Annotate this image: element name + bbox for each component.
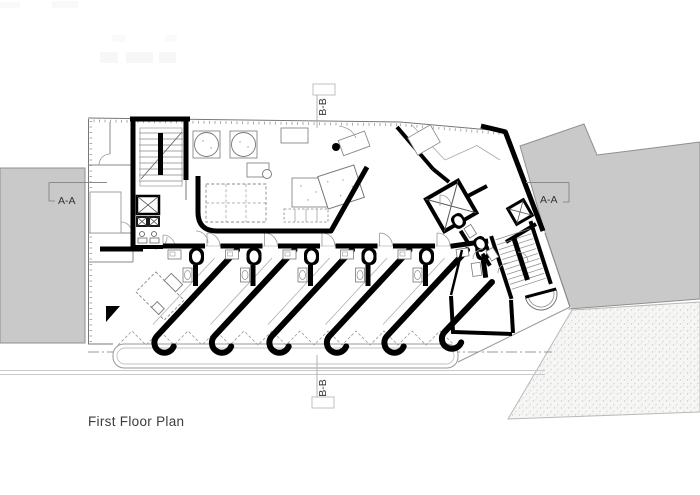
floor-plan-drawing: A-A A-A B-B B-B First Floor Plan xyxy=(0,0,700,495)
watermark xyxy=(0,1,177,63)
section-label-aa-right: A-A xyxy=(540,194,558,206)
drawing-title: First Floor Plan xyxy=(88,414,184,429)
section-label-bb-bottom: B-B xyxy=(317,379,329,397)
floor-plan-sheet: A-A A-A B-B B-B First Floor Plan xyxy=(0,0,700,495)
gravel-area xyxy=(508,302,700,419)
column-dot xyxy=(332,143,340,151)
ground-lines xyxy=(0,371,545,375)
section-label-bb-top: B-B xyxy=(317,98,329,116)
section-label-aa-left: A-A xyxy=(58,195,76,207)
